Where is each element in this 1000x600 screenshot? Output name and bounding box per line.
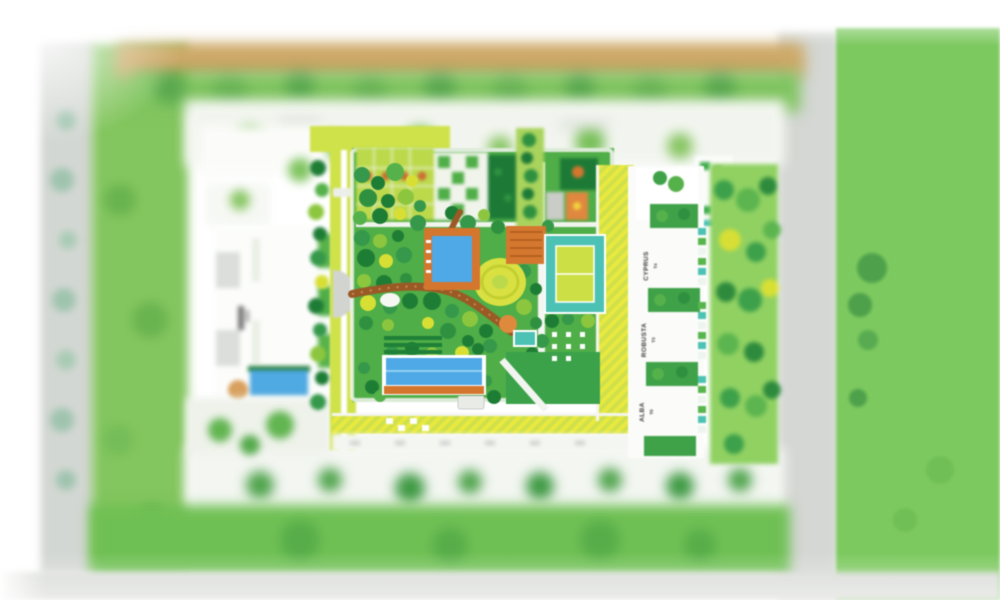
tennis-court <box>544 234 606 314</box>
tower-label-alba: ALBA <box>639 402 646 422</box>
east-tree-strip <box>710 164 781 464</box>
tower-unit-cyprus: T4 <box>653 263 658 269</box>
tower-label-cyprus: CYPRUS <box>643 251 650 281</box>
clubhouse-pavilion <box>506 226 546 264</box>
parked-car <box>333 188 351 197</box>
tower-unit-alba: T0 <box>649 409 654 415</box>
pool-pavilion <box>458 396 484 409</box>
lap-pool <box>382 355 486 395</box>
left-pool <box>250 370 308 396</box>
tower-unit-robusta: T3 <box>651 337 656 343</box>
left-tower-label-smudge <box>238 306 244 330</box>
upper-pool <box>424 228 480 290</box>
bottom-fade-overlay <box>0 552 1000 600</box>
right-green-field <box>836 28 1000 600</box>
tower-row: CYPRUS T4 ROBUSTA T3 ALBA T0 <box>628 166 706 458</box>
south-service-road <box>332 434 638 452</box>
tower-label-robusta: ROBUSTA <box>641 323 648 357</box>
site-plan-image: CYPRUS T4 ROBUSTA T3 ALBA T0 <box>0 0 1000 600</box>
left-lower-grounds <box>186 398 332 455</box>
fountain <box>380 293 400 307</box>
hedge-rows <box>384 336 442 354</box>
oval-lawn <box>474 258 526 306</box>
